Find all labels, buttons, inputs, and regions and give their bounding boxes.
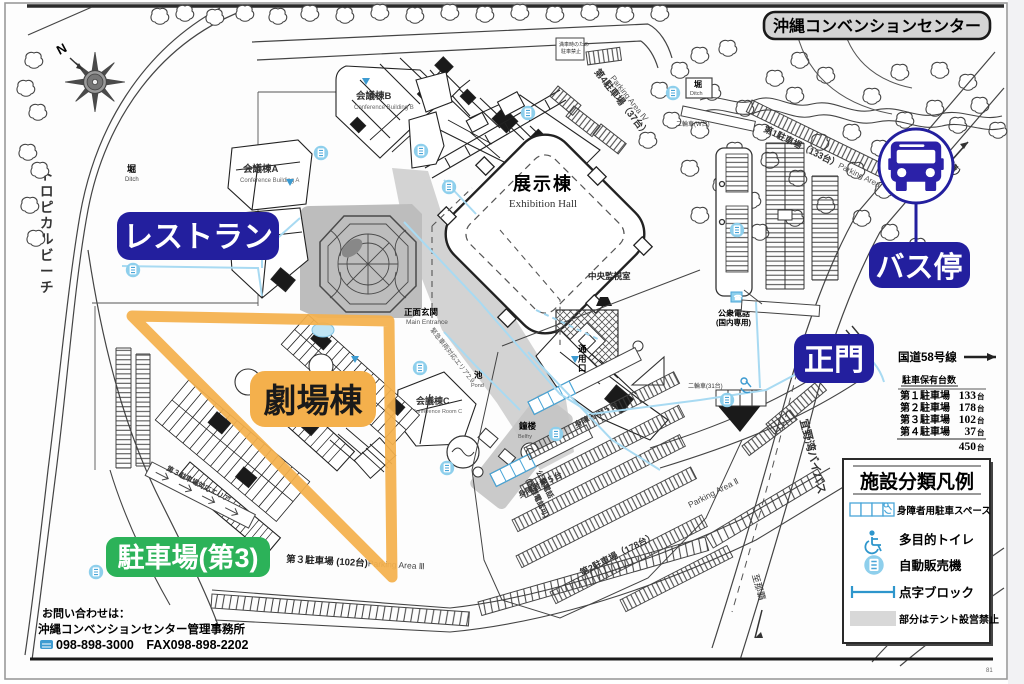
svg-text:178: 178 [959, 402, 977, 414]
svg-text:身障者用駐車スペース: 身障者用駐車スペース [897, 505, 991, 517]
svg-text:バス停: バス停 [875, 250, 962, 284]
svg-text:堀: 堀 [694, 79, 702, 89]
svg-text:展示棟: 展示棟 [513, 173, 573, 194]
svg-text:多目的トイレ: 多目的トイレ [899, 532, 974, 547]
svg-text:台: 台 [977, 415, 985, 425]
svg-text:正面玄関: 正面玄関 [404, 307, 438, 317]
svg-text:Conference Room C: Conference Room C [412, 409, 462, 415]
svg-text:沖縄コンベンションセンター管理事務所: 沖縄コンベンションセンター管理事務所 [38, 622, 245, 636]
svg-text:二輪車(W台): 二輪車(W台) [676, 120, 710, 128]
svg-text:駐車場(第3): 駐車場(第3) [118, 542, 259, 573]
svg-text:通用口: 通用口 [577, 344, 587, 373]
svg-text:Pond: Pond [471, 383, 484, 389]
svg-text:自動販売機: 自動販売機 [899, 558, 962, 573]
svg-text:施設分類凡例: 施設分類凡例 [860, 470, 974, 493]
svg-text:Ditch: Ditch [690, 91, 703, 97]
svg-text:133: 133 [959, 390, 977, 402]
svg-text:会議棟A: 会議棟A [243, 163, 279, 175]
svg-text:国道58号線: 国道58号線 [898, 350, 957, 364]
svg-text:(国内専用): (国内専用) [716, 317, 751, 327]
svg-text:お問い合わせは：: お問い合わせは： [42, 606, 130, 620]
svg-text:台: 台 [977, 391, 985, 401]
svg-text:81: 81 [986, 668, 993, 674]
svg-text:台: 台 [977, 403, 985, 413]
svg-text:Main Entrance: Main Entrance [406, 319, 448, 326]
svg-text:098-898-3000 FAX098-898-2202: 098-898-3000 FAX098-898-2202 [56, 638, 249, 652]
svg-text:台: 台 [977, 442, 985, 452]
svg-text:会議棟C: 会議棟C [416, 395, 450, 406]
svg-text:37: 37 [965, 426, 977, 438]
svg-text:劇場棟: 劇場棟 [264, 382, 364, 419]
svg-text:二輪車(31台): 二輪車(31台) [688, 382, 723, 390]
svg-text:第２駐車場: 第２駐車場 [900, 401, 950, 414]
svg-text:会議棟B: 会議棟B [356, 90, 392, 102]
svg-text:102: 102 [959, 414, 977, 426]
svg-text:中央監視室: 中央監視室 [588, 271, 631, 281]
svg-text:Exhibition Hall: Exhibition Hall [509, 198, 577, 210]
svg-text:レストラン: レストラン [123, 221, 273, 254]
svg-text:第１駐車場: 第１駐車場 [900, 389, 950, 402]
svg-text:堀: 堀 [127, 163, 136, 174]
svg-text:正門: 正門 [804, 344, 864, 377]
svg-text:台: 台 [977, 427, 985, 437]
svg-text:第４駐車場: 第４駐車場 [900, 425, 950, 438]
svg-text:満車時のため: 満車時のため [559, 41, 589, 48]
svg-text:駐車保有台数: 駐車保有台数 [902, 374, 957, 385]
svg-text:Ditch: Ditch [125, 177, 139, 183]
svg-text:沖縄コンベンションセンター: 沖縄コンベンションセンター [773, 17, 981, 36]
svg-text:駐車禁止: 駐車禁止 [561, 48, 581, 55]
svg-text:☎: ☎ [734, 294, 743, 302]
svg-text:部分はテント設営禁止: 部分はテント設営禁止 [899, 613, 999, 626]
svg-text:450: 450 [959, 441, 977, 453]
svg-text:Belfry: Belfry [518, 434, 532, 440]
svg-text:第３駐車場: 第３駐車場 [900, 413, 950, 426]
svg-text:Conference Building B: Conference Building B [354, 105, 414, 111]
svg-text:鐘楼: 鐘楼 [519, 421, 537, 431]
svg-text:点字ブロック: 点字ブロック [899, 585, 974, 600]
